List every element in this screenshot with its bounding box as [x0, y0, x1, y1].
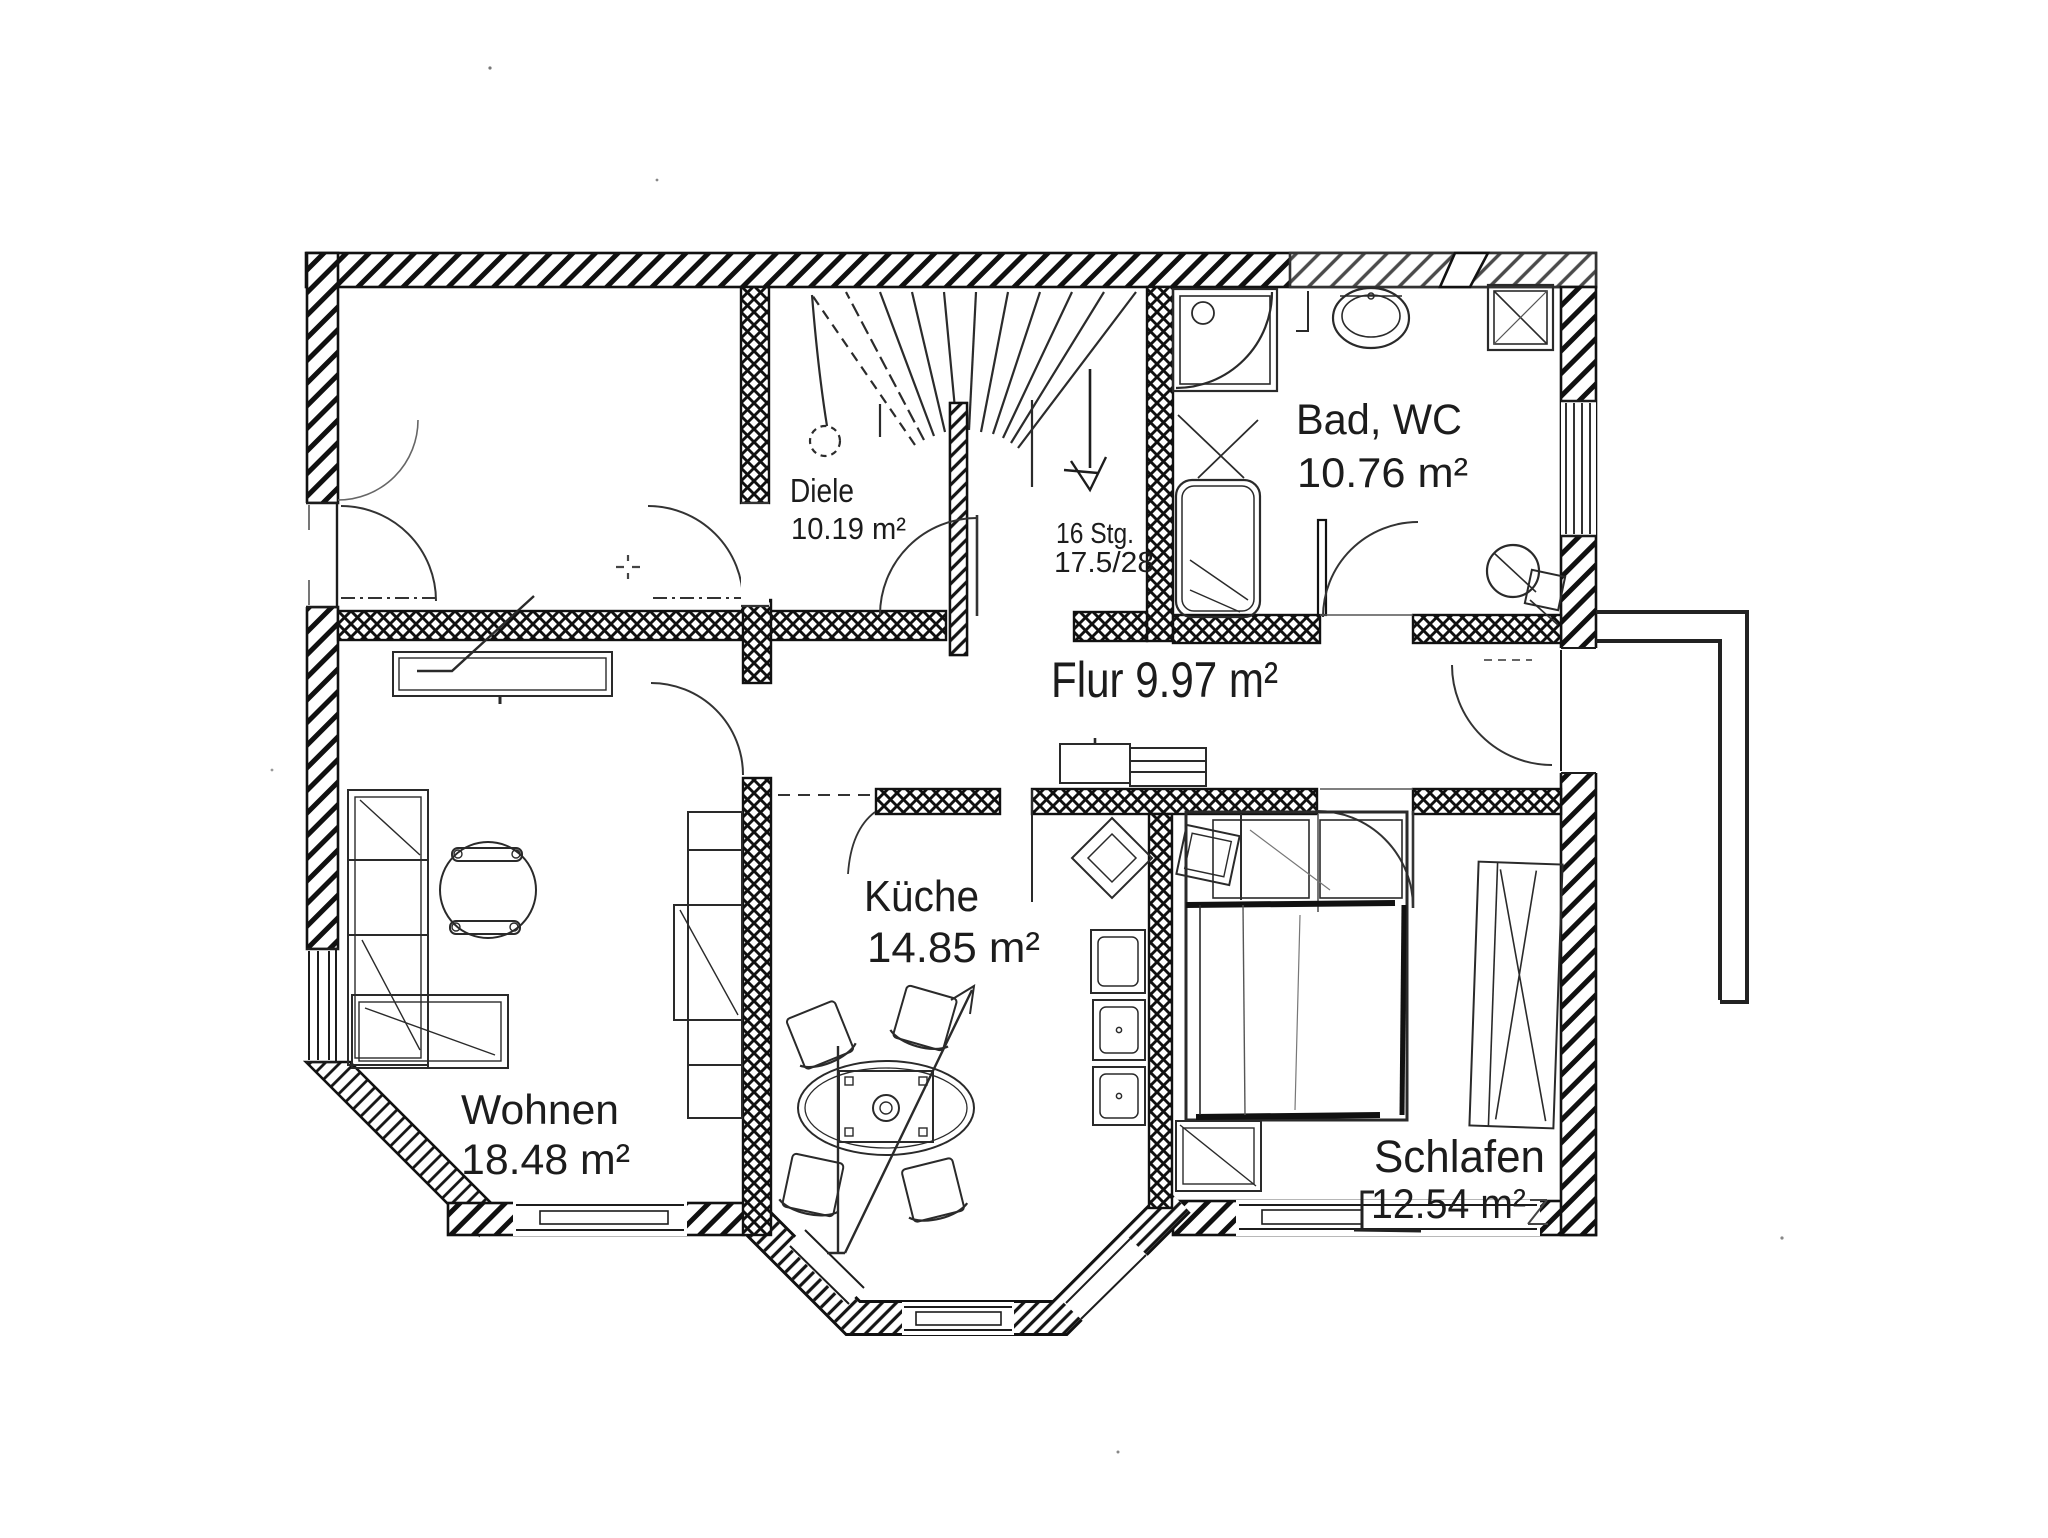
svg-text:17.5/28: 17.5/28	[1054, 547, 1154, 579]
svg-text:Diele: Diele	[790, 472, 854, 509]
svg-text:16 Stg.: 16 Stg.	[1056, 518, 1134, 550]
svg-text:Flur 9.97 m²: Flur 9.97 m²	[1051, 652, 1278, 708]
svg-text:Wohnen: Wohnen	[461, 1086, 619, 1133]
svg-text:18.48 m²: 18.48 m²	[461, 1136, 630, 1184]
svg-text:Schlafen: Schlafen	[1374, 1131, 1545, 1182]
svg-text:Küche: Küche	[864, 872, 979, 921]
svg-text:10.76 m²: 10.76 m²	[1297, 449, 1468, 496]
svg-text:Bad, WC: Bad, WC	[1296, 396, 1462, 444]
svg-text:10.19 m²: 10.19 m²	[791, 511, 906, 546]
svg-text:14.85 m²: 14.85 m²	[867, 924, 1040, 972]
svg-text:12.54 m²: 12.54 m²	[1371, 1180, 1526, 1227]
